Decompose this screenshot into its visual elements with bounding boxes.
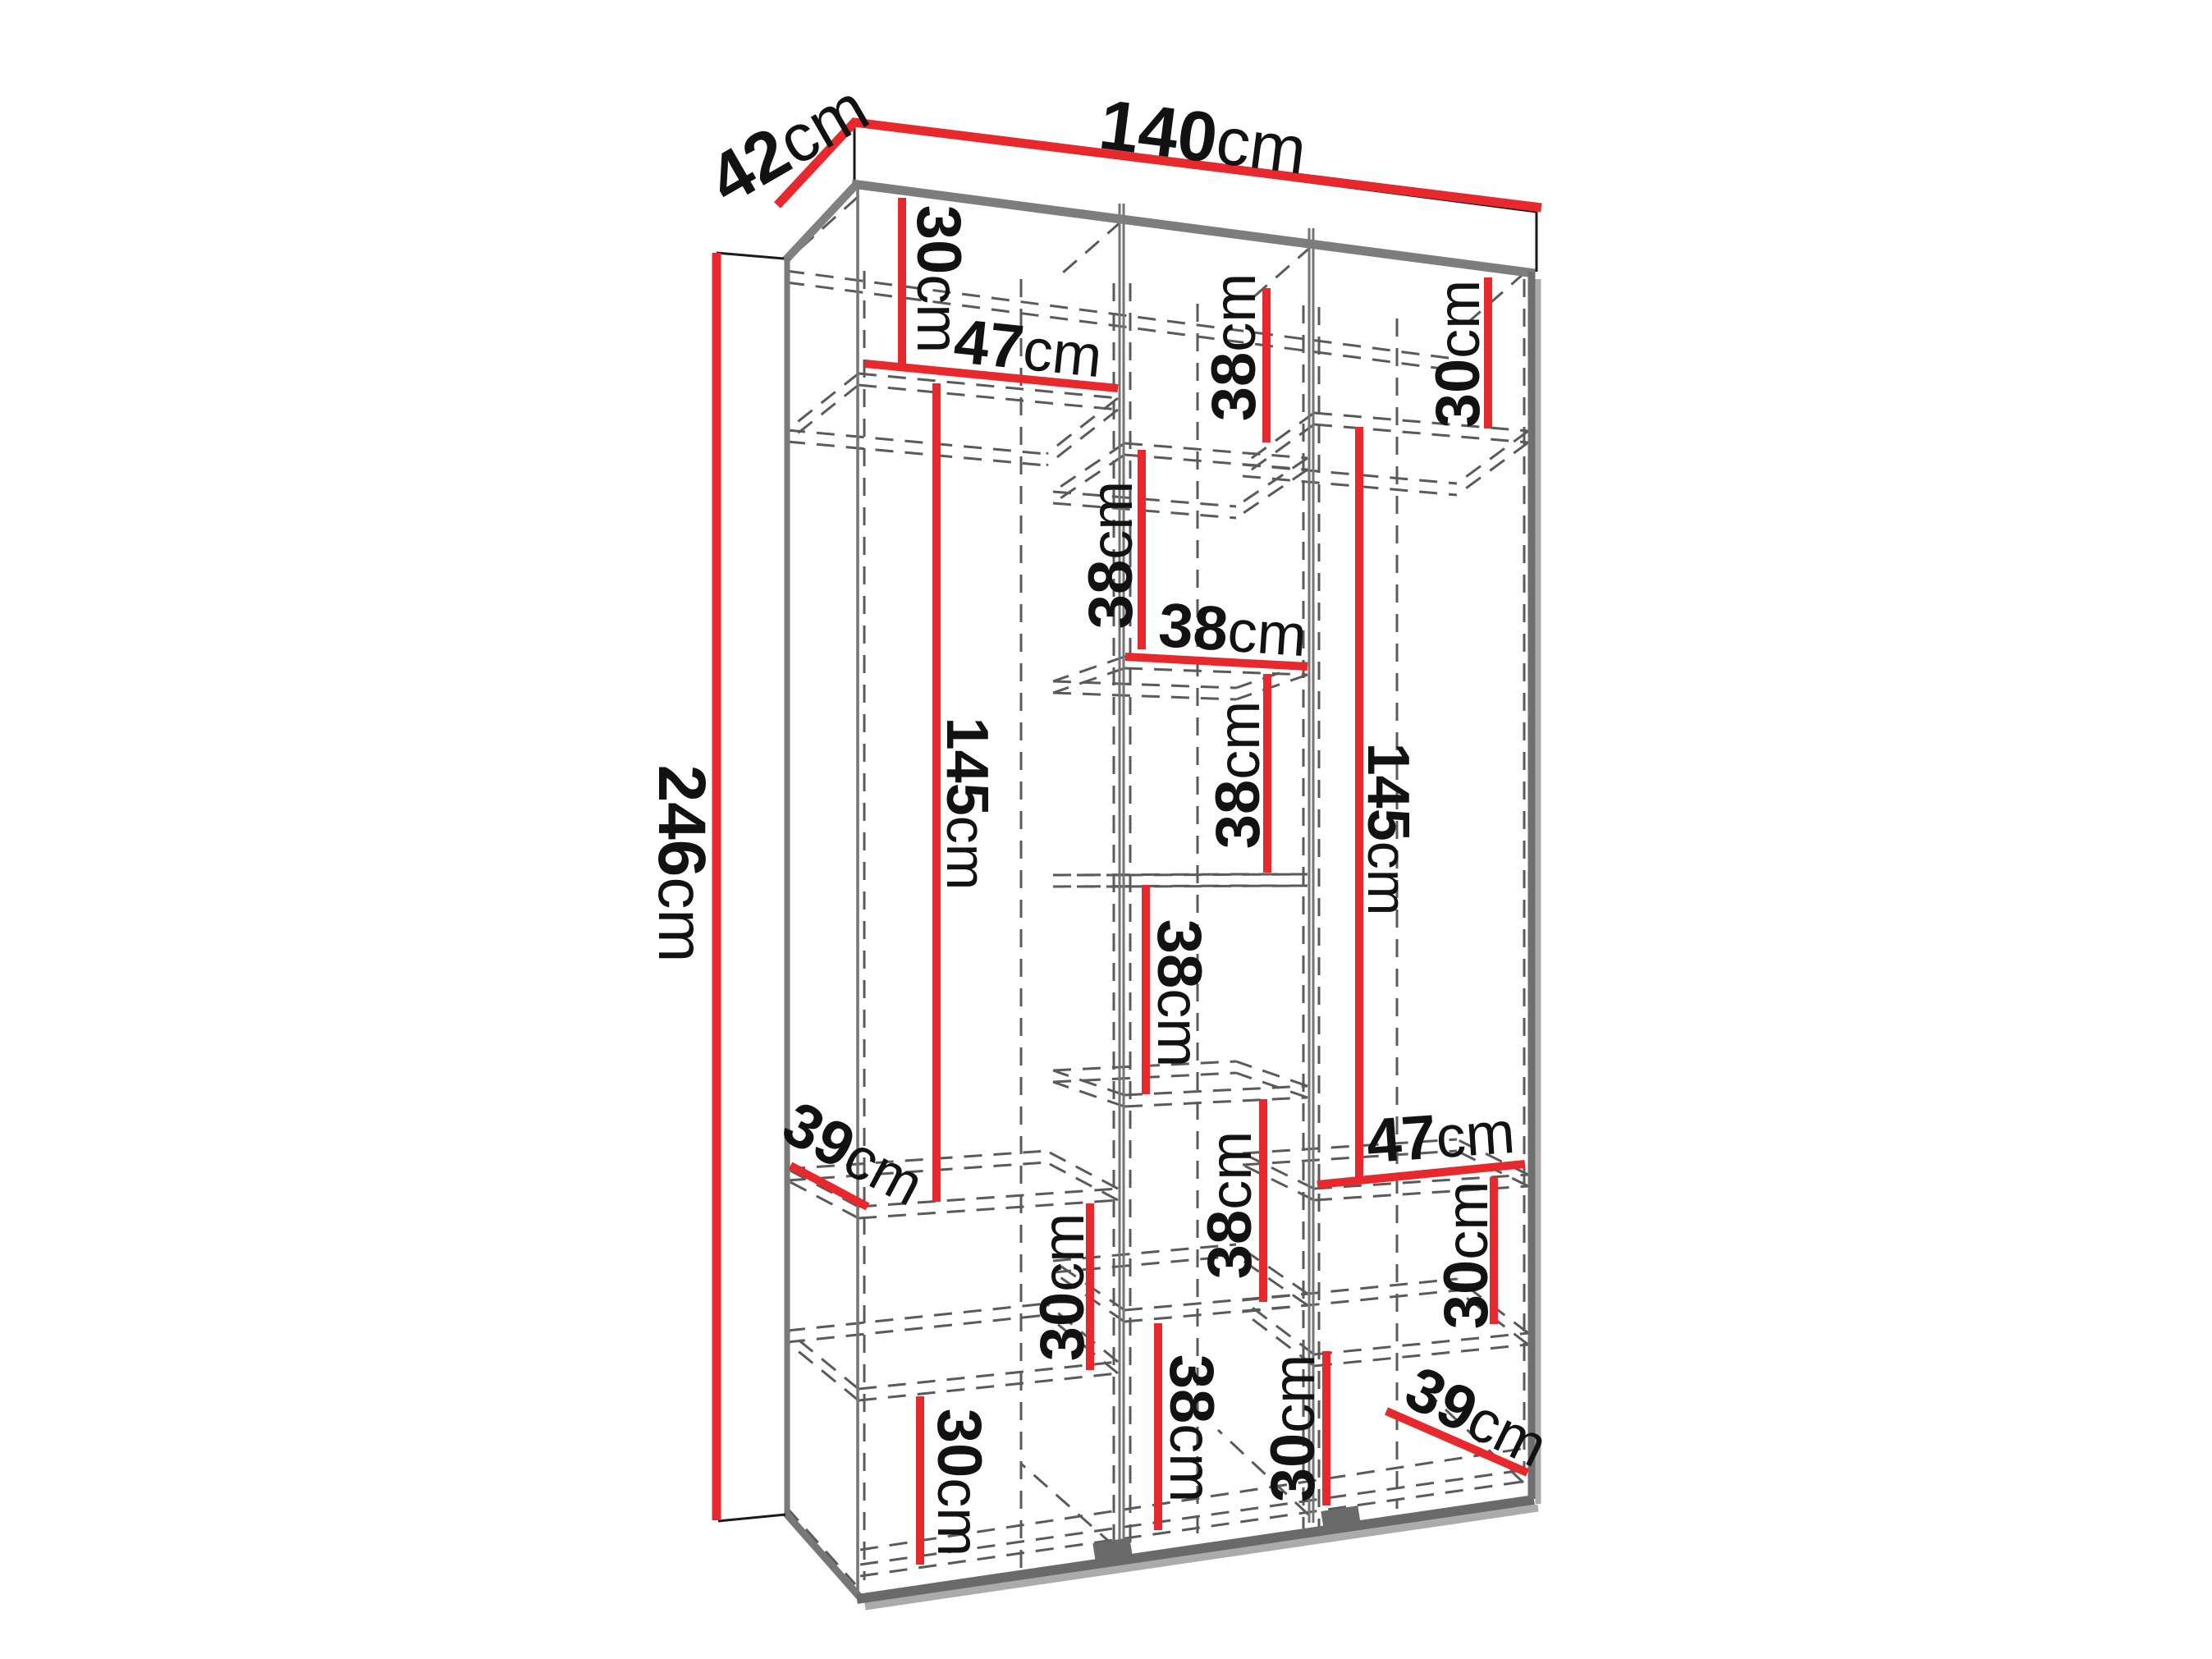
svg-text:30cm: 30cm	[924, 1409, 994, 1557]
svg-text:246cm: 246cm	[644, 765, 719, 963]
svg-text:30cm: 30cm	[1431, 1181, 1501, 1330]
svg-text:38cm: 38cm	[1144, 919, 1214, 1068]
svg-text:38cm: 38cm	[1203, 701, 1273, 850]
svg-text:38cm: 38cm	[1199, 273, 1269, 422]
svg-text:38cm: 38cm	[1156, 590, 1309, 670]
svg-text:47cm: 47cm	[1364, 1097, 1517, 1176]
svg-text:145cm: 145cm	[934, 717, 1000, 891]
svg-text:30cm: 30cm	[1423, 280, 1493, 428]
svg-text:30cm: 30cm	[1028, 1213, 1097, 1362]
svg-text:38cm: 38cm	[1195, 1131, 1265, 1280]
svg-text:30cm: 30cm	[1258, 1354, 1328, 1503]
svg-text:38cm: 38cm	[1156, 1354, 1226, 1503]
svg-text:38cm: 38cm	[1076, 481, 1146, 630]
svg-text:145cm: 145cm	[1355, 743, 1421, 916]
